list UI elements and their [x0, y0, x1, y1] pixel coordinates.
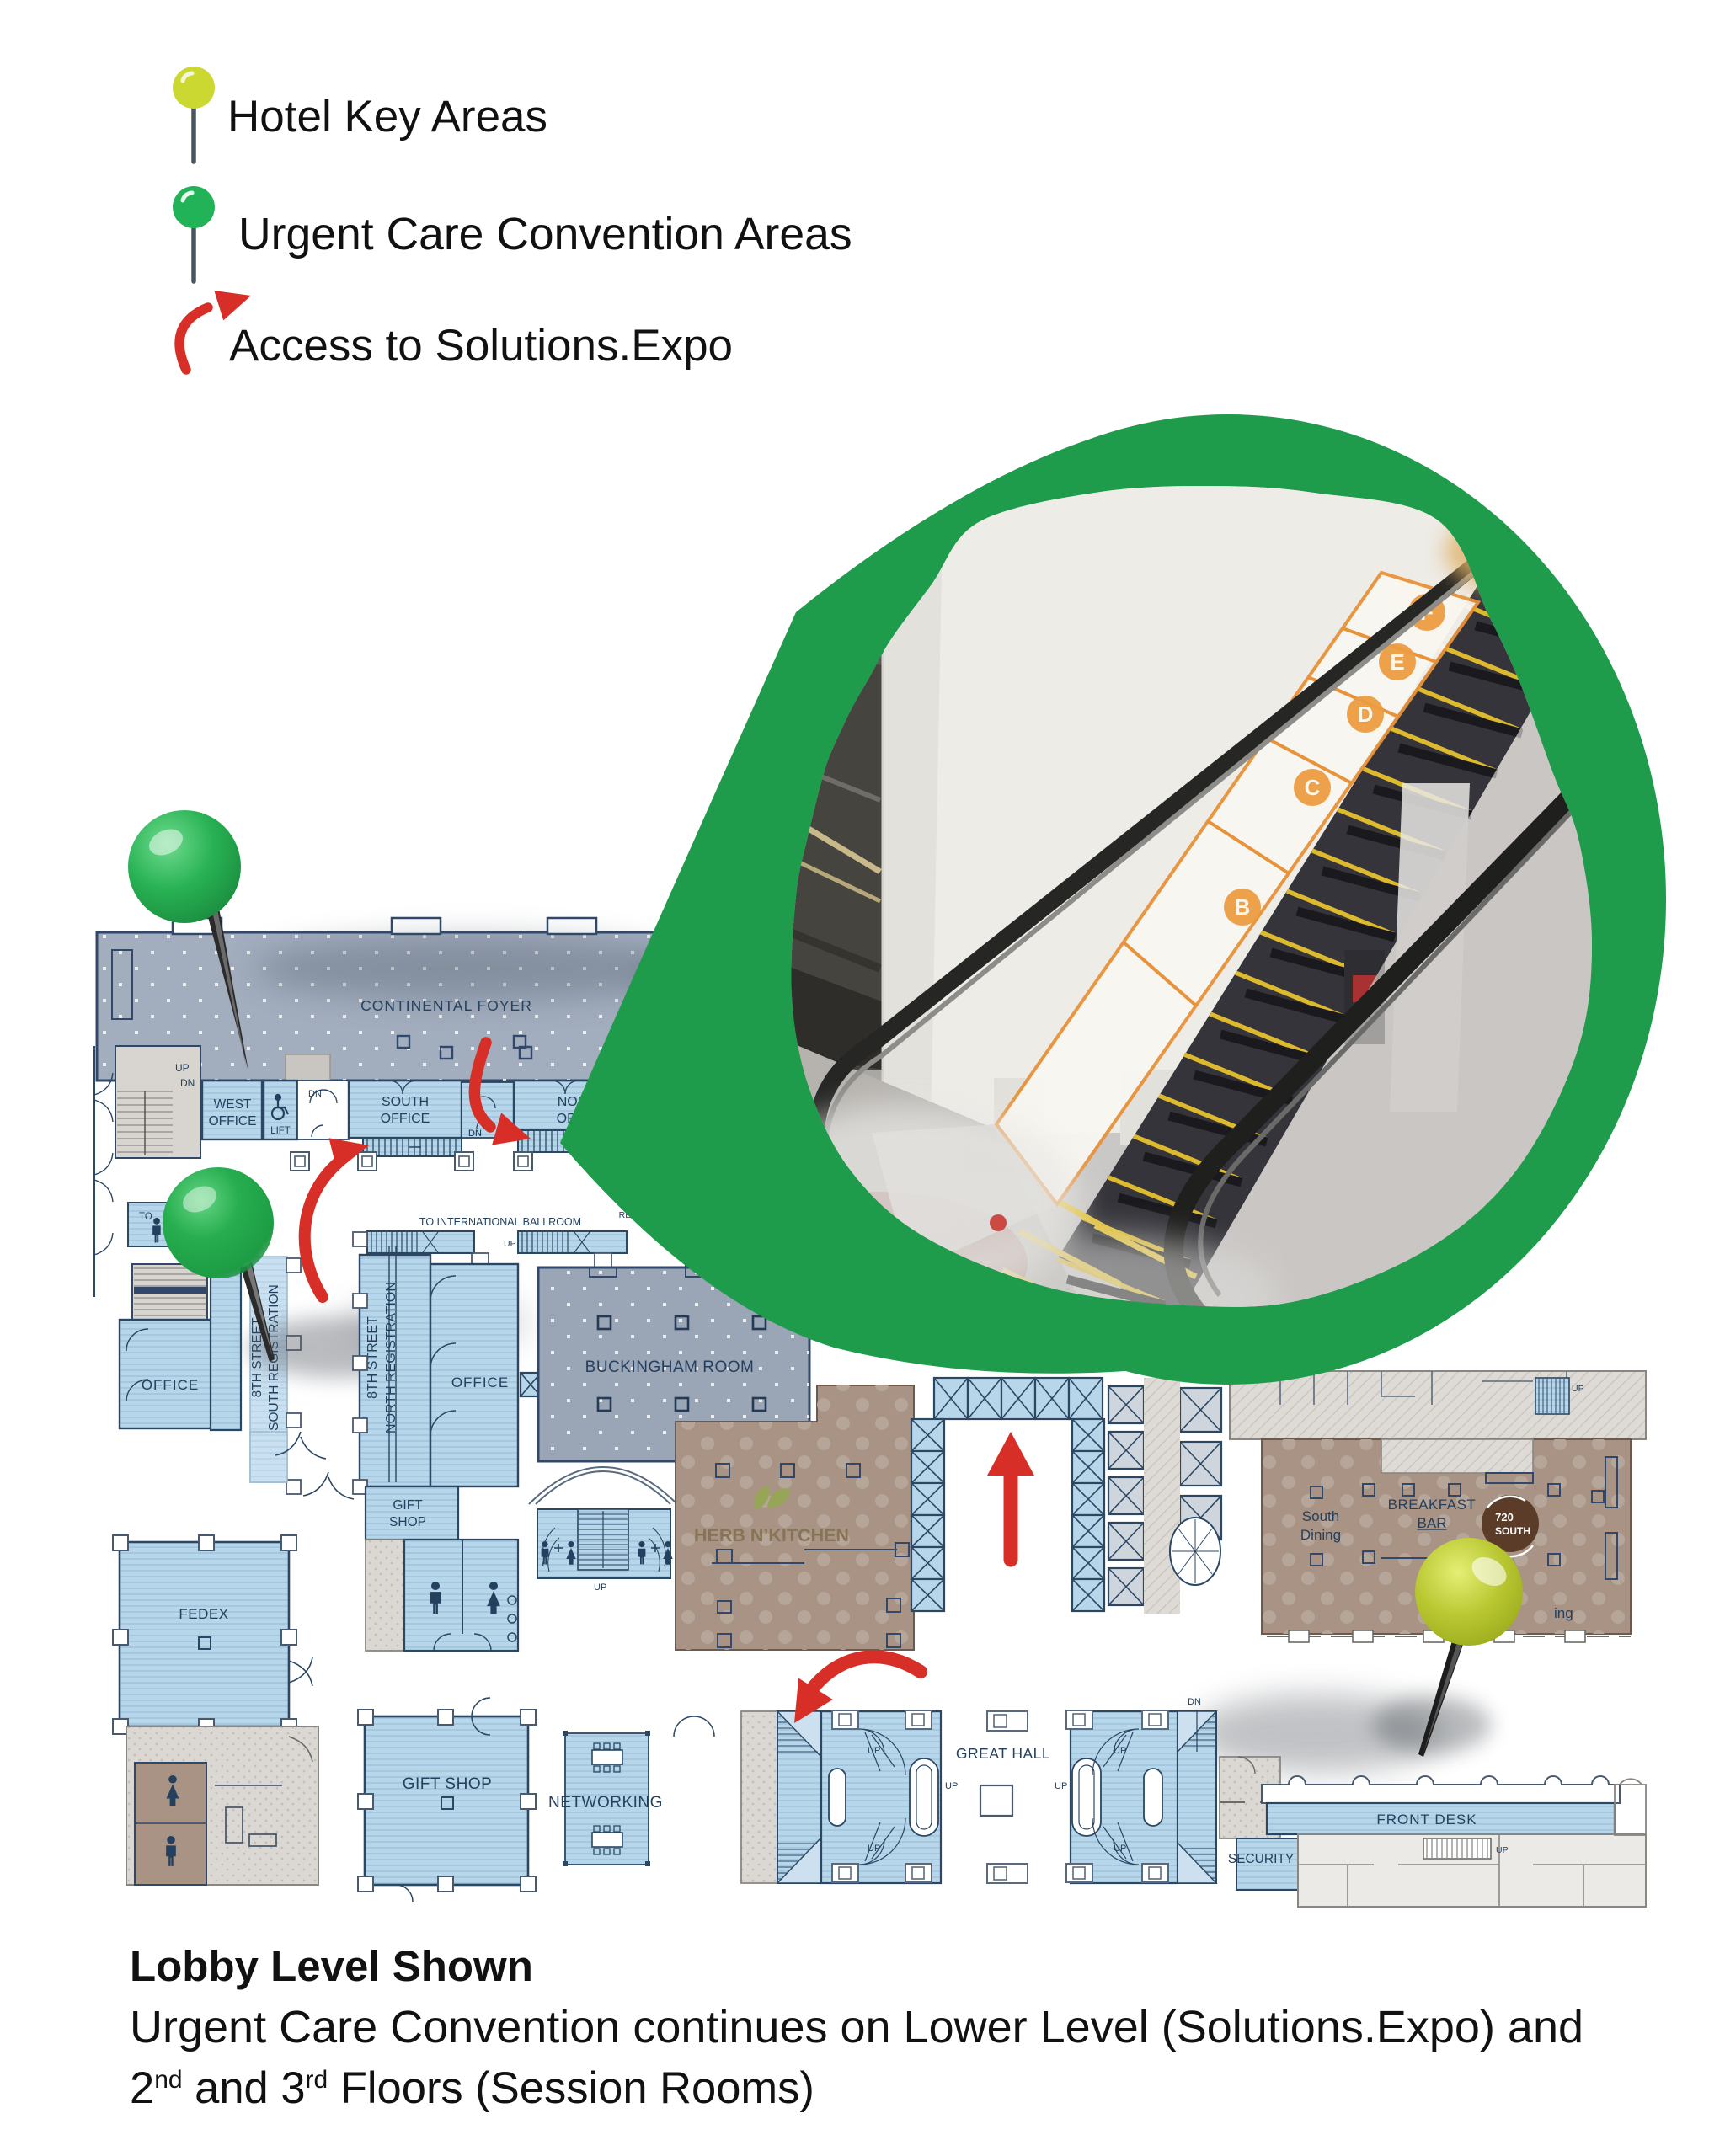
svg-text:TO INTERNATIONAL BALLROOM: TO INTERNATIONAL BALLROOM	[419, 1216, 581, 1228]
svg-text:South: South	[1302, 1508, 1339, 1524]
svg-text:DN: DN	[468, 1129, 482, 1139]
svg-text:UP: UP	[868, 1844, 880, 1854]
svg-text:Urgent Care Convention Areas: Urgent Care Convention Areas	[238, 210, 852, 259]
svg-text:Hotel Key Areas: Hotel Key Areas	[227, 92, 547, 141]
svg-text:UP: UP	[1114, 1746, 1126, 1756]
svg-text:FEDEX: FEDEX	[179, 1606, 228, 1622]
svg-text:UP: UP	[1114, 1844, 1126, 1854]
svg-text:DN: DN	[1188, 1697, 1201, 1707]
svg-text:HERB N’KITCHEN: HERB N’KITCHEN	[694, 1525, 849, 1545]
svg-text:FRONT DESK: FRONT DESK	[1376, 1812, 1477, 1828]
svg-text:BUCKINGHAM ROOM: BUCKINGHAM ROOM	[585, 1358, 755, 1376]
svg-text:NETWORKING: NETWORKING	[548, 1794, 663, 1812]
svg-text:TO: TO	[139, 1212, 152, 1222]
svg-text:NORTH REGISTRATION: NORTH REGISTRATION	[384, 1282, 398, 1433]
svg-text:OFFICE: OFFICE	[142, 1377, 199, 1393]
svg-text:Dining: Dining	[1300, 1527, 1341, 1543]
svg-text:UP: UP	[868, 1746, 880, 1756]
svg-text:BREAKFAST: BREAKFAST	[1388, 1497, 1477, 1513]
svg-text:BAR: BAR	[1418, 1515, 1447, 1531]
svg-text:Access to Solutions.Expo: Access to Solutions.Expo	[229, 321, 733, 371]
svg-text:B: B	[1235, 894, 1251, 920]
svg-text:UP: UP	[594, 1582, 606, 1593]
svg-text:UP: UP	[1496, 1845, 1509, 1855]
svg-text:GREAT HALL: GREAT HALL	[956, 1745, 1050, 1762]
svg-text:C: C	[1305, 775, 1321, 800]
svg-text:OFFICE: OFFICE	[209, 1114, 257, 1129]
svg-text:GIFT SHOP: GIFT SHOP	[403, 1775, 493, 1793]
svg-text:OFFICE: OFFICE	[381, 1112, 430, 1126]
svg-text:UP: UP	[1572, 1384, 1584, 1394]
svg-text:GIFT: GIFT	[393, 1498, 423, 1513]
svg-text:SOUTH: SOUTH	[382, 1095, 429, 1109]
svg-text:UP: UP	[504, 1239, 516, 1249]
svg-text:DN: DN	[180, 1077, 195, 1089]
svg-text:SHOP: SHOP	[389, 1515, 426, 1529]
svg-text:D: D	[1358, 702, 1374, 727]
svg-text:SECURITY: SECURITY	[1228, 1852, 1294, 1866]
svg-text:DN: DN	[308, 1089, 322, 1099]
svg-text:Lobby Level Shown: Lobby Level Shown	[130, 1942, 533, 1990]
svg-text:UP: UP	[945, 1781, 958, 1791]
svg-text:UP: UP	[1055, 1781, 1067, 1791]
svg-text:UP: UP	[175, 1062, 190, 1074]
svg-text:WEST: WEST	[214, 1097, 252, 1112]
svg-text:2nd and 3rd Floors (Session Ro: 2nd and 3rd Floors (Session Rooms)	[130, 2063, 814, 2113]
svg-text:OFFICE: OFFICE	[451, 1374, 509, 1390]
svg-text:720: 720	[1495, 1511, 1514, 1524]
svg-text:ing: ing	[1554, 1605, 1573, 1621]
svg-text:E: E	[1390, 649, 1404, 675]
svg-text:Urgent Care Convention continu: Urgent Care Convention continues on Lowe…	[130, 2002, 1583, 2052]
svg-text:SOUTH: SOUTH	[1495, 1525, 1530, 1537]
svg-text:LIFT: LIFT	[270, 1126, 291, 1136]
